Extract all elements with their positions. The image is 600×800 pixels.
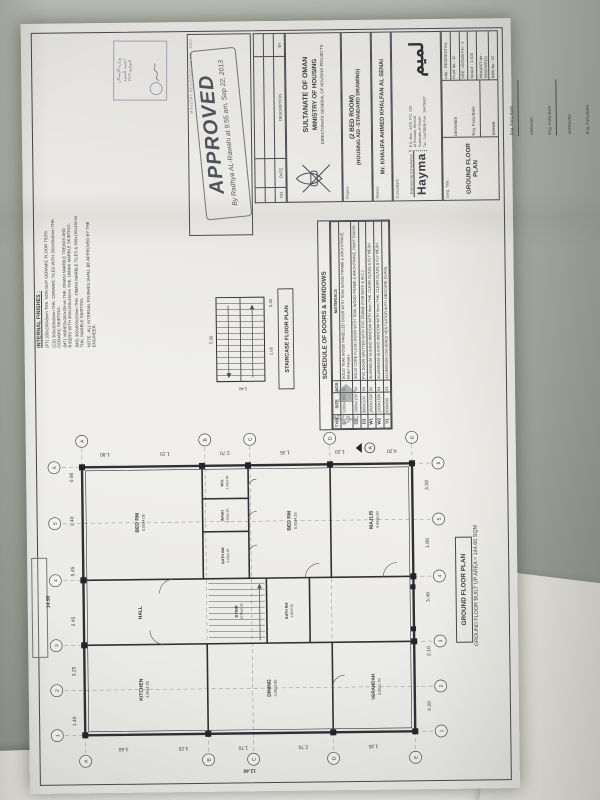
person-name: Eng. Fariq Bakir: [546, 105, 551, 134]
svg-text:A: A: [84, 759, 90, 763]
person-name: Eng. Fariq Bakir: [584, 105, 589, 134]
svg-text:3.30: 3.30: [424, 480, 430, 490]
svg-text:A: A: [80, 439, 86, 443]
staircase-detail-title: STAIRCASE FLOOR PLAN: [284, 305, 291, 372]
svg-text:HALL: HALL: [138, 606, 144, 619]
svg-text:1.80: 1.80: [425, 538, 431, 548]
svg-text:BATH RM: BATH RM: [285, 603, 289, 619]
person-name: Eng. Fariq Bakir: [470, 106, 475, 135]
svg-text:3.25: 3.25: [178, 745, 188, 751]
finishes-title: INTERNAL FINISHES :: [35, 214, 43, 348]
consultant-logo-arabic: لميم: [405, 35, 429, 83]
title-fields-cell: Dwg. Title : GROUND FLOOR PLAN DESIGNEDE…: [441, 30, 500, 201]
svg-text:BED RM: BED RM: [135, 513, 141, 533]
finishes-line: (CS) 300x300x8mm THK. CERAMIC TILES WITH…: [50, 214, 62, 348]
approved-stamp: APPROVED By Radhya AL-Rawahi at 9:55 am,…: [190, 47, 253, 221]
finishes-line: NOTE : ALL INTERNAL FINISHES SHALL BE AP…: [85, 213, 97, 347]
consultant-address: P.O. Box : 1470, P.C. 133 Al Khuwair, Mu…: [408, 83, 427, 151]
internal-finishes-notes: INTERNAL FINISHES : (FT) 200x200x8mm THK…: [35, 213, 98, 348]
svg-text:1.70: 1.70: [238, 744, 248, 750]
person-role: DRAWN: [491, 122, 495, 136]
svg-text:W.C.: W.C.: [220, 479, 224, 487]
svg-text:3: 3: [438, 639, 444, 642]
owner-cell: Owner : Mr. KHALIFA AHMED KHALFAN AL SEN…: [371, 32, 393, 202]
svg-text:2.10: 2.10: [426, 646, 432, 656]
svg-text:BATH RM: BATH RM: [221, 547, 225, 563]
svg-text:4.00x4.00: 4.00x4.00: [146, 681, 150, 698]
approval-cell: MINISTRY REGISTRATION NO : 4653 APPROVED…: [187, 33, 253, 236]
finishes-line: (FT) 200x200x8mm THK. NON SLIP CERAMIC F…: [43, 214, 50, 348]
svg-text:5.00x4.25: 5.00x4.25: [294, 512, 298, 529]
project-cell: Project : (2 BED ROOM) (HOUSING AID -STA…: [341, 32, 373, 202]
svg-text:10TRx0.30: 10TRx0.30: [240, 603, 244, 620]
svg-text:1.35: 1.35: [368, 743, 378, 749]
consultant-name-latin: Hayma: [414, 151, 429, 197]
svg-text:4.50x5.00: 4.50x5.00: [376, 511, 380, 528]
watermark-text: بيوت: [318, 408, 374, 424]
svg-text:6: 6: [436, 461, 442, 464]
stamp-line: التوقيع ٢٢/٩: [127, 45, 133, 97]
project-label: Project :: [345, 184, 350, 199]
svg-text:12.40: 12.40: [243, 767, 256, 773]
meta-field: DWG No : 02: [489, 31, 497, 79]
door-swings: [148, 478, 399, 690]
svg-text:C: C: [252, 757, 258, 761]
person-field: DESIGNEDEng. Fariq Bakir: [442, 80, 481, 136]
revision-table: NODATE DESCRIPTIONBY: [253, 33, 287, 203]
svg-text:6: 6: [52, 466, 58, 469]
svg-text:E: E: [414, 755, 420, 759]
svg-text:4: 4: [437, 574, 443, 577]
svg-text:WASH: WASH: [221, 510, 225, 521]
svg-text:4.20: 4.20: [387, 447, 397, 453]
svg-text:5.30: 5.30: [208, 335, 213, 344]
watermark-bayut: بيوت: [318, 383, 374, 424]
svg-text:2.70: 2.70: [220, 450, 230, 456]
svg-text:STAIR: STAIR: [234, 605, 239, 617]
schedule-row: V1600x60003ALUMINIUM LOUVERED VENTILATOR…: [381, 221, 391, 428]
svg-text:1: 1: [439, 729, 445, 732]
plan-title: GROUND FLOOR PLAN: [455, 537, 473, 643]
svg-text:A: A: [368, 445, 374, 449]
person-field: DRAWNEng. Fariq Bakir: [480, 80, 519, 136]
meta-field: PROJECT No : S/B/DWG(2): [477, 31, 490, 79]
svg-text:1.40: 1.40: [72, 716, 78, 726]
svg-text:3.40: 3.40: [426, 592, 432, 602]
svg-text:0.95: 0.95: [69, 472, 75, 482]
svg-text:5: 5: [53, 522, 59, 525]
project-line2: (HOUSING AID -STANDARD DRAWING): [355, 33, 363, 201]
person-name: Eng. Fariq Bakir: [508, 106, 513, 135]
oman-national-emblem-icon: [291, 155, 338, 202]
svg-text:1.35: 1.35: [280, 449, 290, 455]
svg-text:1.20: 1.20: [335, 448, 345, 454]
staircase-detail: 5.30 2.40 1.00 0.30 STAIRCASE FLOOR PLAN: [206, 283, 307, 396]
detail-treads: [216, 297, 265, 382]
person-field: CHECKEDEng. Fariq Bakir: [518, 80, 557, 136]
drawing-title: GROUND FLOOR PLAN: [465, 137, 480, 199]
svg-text:3: 3: [54, 644, 60, 647]
svg-text:B: B: [203, 437, 209, 441]
person-role: DESIGNED: [453, 117, 457, 136]
svg-text:5.45: 5.45: [70, 566, 76, 576]
section-marker: A: [356, 443, 375, 453]
ground-floor-plan-drawing: 123456 123456 ABCDE ABCDE: [40, 429, 452, 786]
svg-text:2.70: 2.70: [298, 744, 308, 750]
svg-text:2.25x2.05: 2.25x2.05: [226, 548, 230, 562]
svg-text:3.25: 3.25: [71, 666, 77, 676]
drawing-sheet: 123456 123456 ABCDE ABCDE: [21, 18, 520, 794]
svg-text:1.15: 1.15: [160, 450, 170, 456]
svg-text:1.80: 1.80: [100, 451, 110, 457]
svg-text:D: D: [328, 436, 334, 440]
address-line: Tel : 24478636 Fax : 24478637: [422, 83, 427, 147]
person-field: APPROVEDEng. Fariq Bakir: [556, 79, 594, 135]
directorate-line: DIRECTORATE GENERAL OF HOUSING PROJECTS: [318, 33, 325, 155]
svg-text:14.90: 14.90: [46, 595, 52, 608]
consultant-cell: Consultant : Engineering Consultancy Hay…: [391, 31, 443, 202]
svg-text:DINING: DINING: [267, 679, 273, 697]
svg-text:1: 1: [55, 734, 61, 737]
svg-text:5: 5: [437, 517, 443, 520]
person-role: APPROVED: [567, 114, 571, 134]
svg-text:MAJLIS: MAJLIS: [369, 510, 375, 529]
svg-text:4: 4: [53, 579, 59, 582]
walls: [82, 463, 415, 735]
svg-text:1.00: 1.00: [269, 346, 274, 355]
svg-text:0.30: 0.30: [268, 298, 273, 307]
svg-text:B: B: [207, 757, 213, 761]
svg-text:1.60x2.20: 1.60x2.20: [290, 604, 294, 618]
svg-text:2: 2: [55, 689, 61, 692]
consultant-label: Consultant :: [394, 177, 399, 198]
svg-text:2: 2: [439, 684, 445, 687]
svg-text:1.40: 1.40: [70, 516, 76, 526]
person-role: CHECKED: [529, 117, 533, 135]
svg-text:2.40: 2.40: [238, 386, 247, 391]
svg-text:3.60: 3.60: [118, 746, 128, 752]
ministry-header-cell: SULTANATE OF OMAN MINISTRY OF HOUSING DI…: [285, 32, 343, 203]
owner-name: Mr. KHALIFA AHMED KHALFAN AL SENAI: [379, 33, 387, 201]
house-icon: [335, 383, 357, 403]
svg-text:1.20x1.60: 1.20x1.60: [225, 475, 229, 489]
finishes-line: (MT) VARIESx300x20mm THK. OMANI MARBLE T…: [61, 213, 73, 347]
svg-text:VERANDAH: VERANDAH: [371, 673, 376, 700]
svg-text:BED RM: BED RM: [287, 511, 293, 531]
svg-text:4.30: 4.30: [427, 701, 433, 711]
owner-label: Owner :: [375, 185, 380, 199]
svg-text:1.60x2.20: 1.60x2.20: [226, 508, 230, 522]
ministry-stamp-arabic: وزارة الإسكان اعتمد للتنفيذ التوقيع ٢٢/٩: [113, 41, 167, 101]
svg-text:D: D: [332, 756, 338, 760]
photo-of-architectural-drawing: 123456 123456 ABCDE ABCDE: [0, 0, 600, 800]
stamp-signature: [148, 63, 164, 97]
svg-text:E: E: [410, 435, 416, 439]
svg-text:5.00x4.05: 5.00x4.05: [142, 514, 146, 531]
svg-text:KITCHEN: KITCHEN: [139, 678, 145, 701]
dwg-title-label: Dwg. Title :: [445, 178, 450, 198]
svg-text:C: C: [248, 437, 254, 441]
finishes-line: (MS) 300x600x20mm THK. OMANI MARBLE TILE…: [73, 213, 85, 347]
svg-text:2.45: 2.45: [71, 616, 77, 626]
svg-text:3.00x1.70: 3.00x1.70: [378, 678, 382, 695]
svg-text:4.00x3.60: 4.00x3.60: [274, 680, 278, 697]
